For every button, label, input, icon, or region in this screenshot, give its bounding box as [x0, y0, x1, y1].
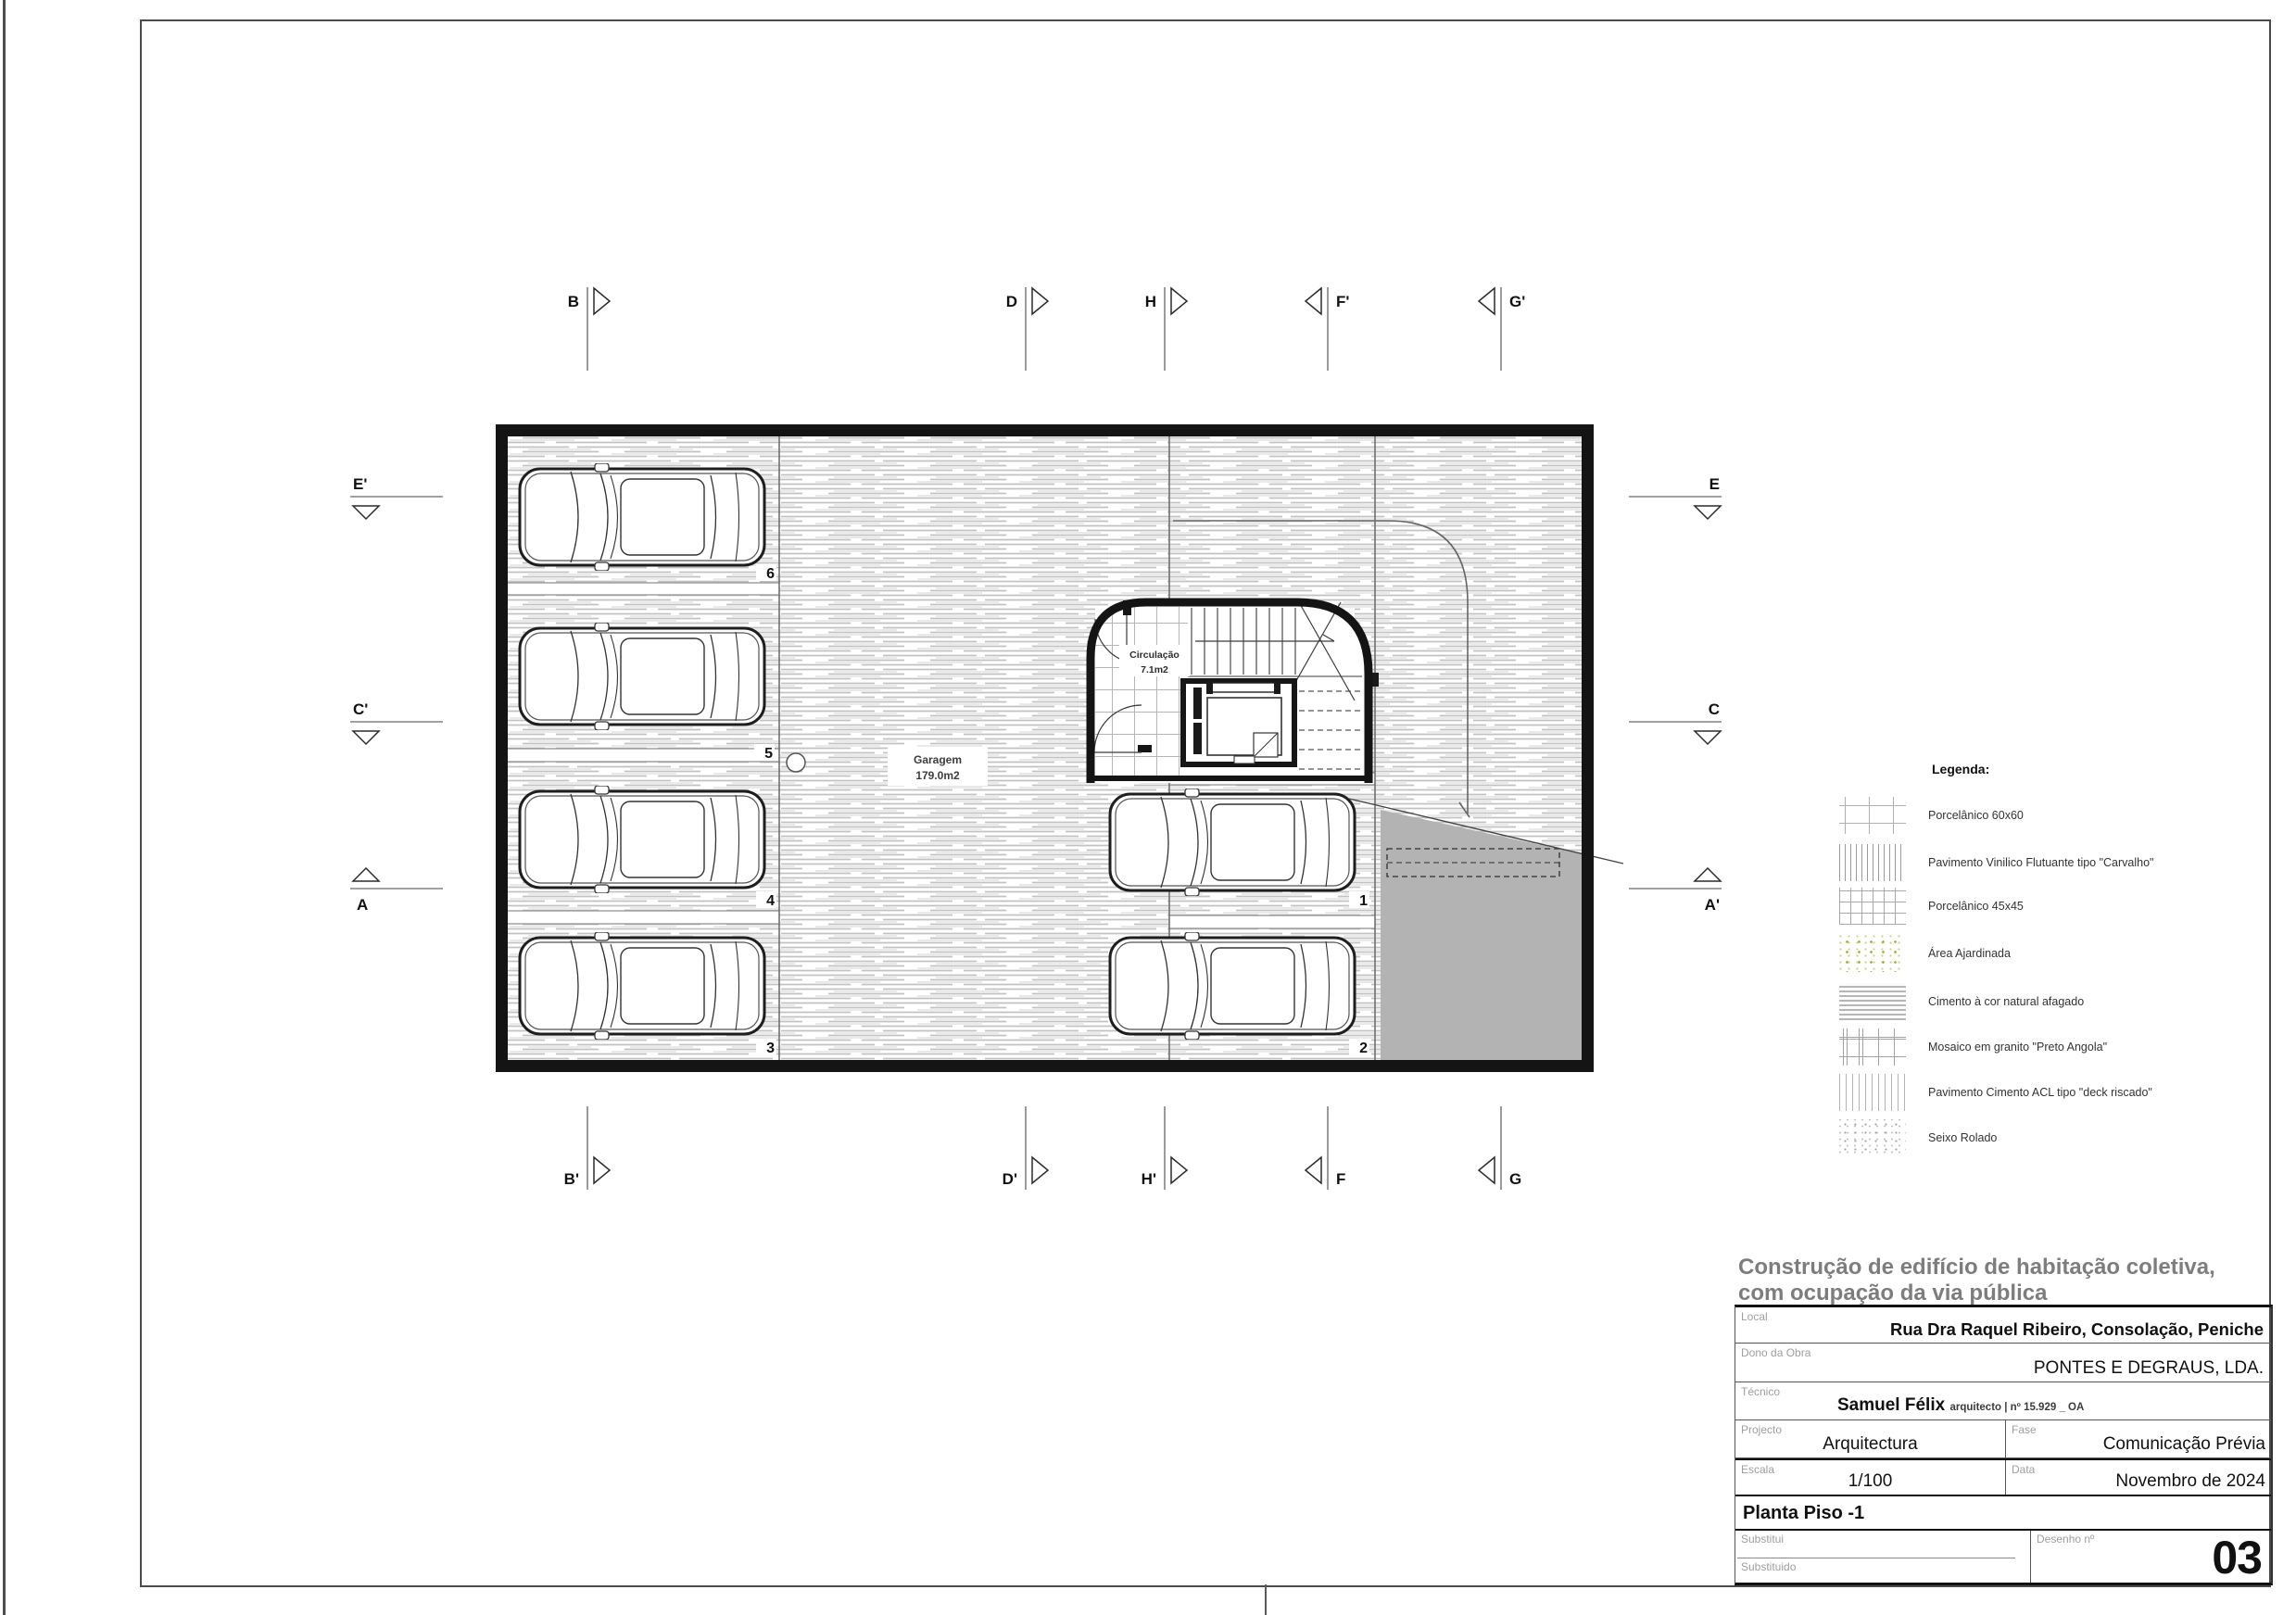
section-marker-D-prime: D' [1003, 1106, 1048, 1190]
section-arrow-icon [1479, 1157, 1495, 1183]
svg-text:B: B [568, 293, 579, 310]
garage-label: Garagem [914, 753, 962, 766]
svg-text:G': G' [1509, 293, 1525, 310]
tecnico-name: Samuel Félix [1837, 1395, 1945, 1415]
pattern-swatch-ajardinada-icon [1839, 935, 1906, 972]
fase-value: Comunicação Prévia [2103, 1434, 2265, 1455]
circulation-label: Circulação [1129, 650, 1180, 661]
car-stall-3 [520, 932, 764, 1040]
stall-number-2: 2 [1359, 1041, 1368, 1056]
stall-number-1: 1 [1359, 893, 1368, 909]
legend-item: Pavimento Cimento ACL tipo "deck riscado… [1839, 1074, 2152, 1111]
section-marker-G-prime: G' [1479, 287, 1525, 371]
garage-label-group: Garagem 179.0m2 [888, 747, 988, 786]
legend-heading: Legenda: [1932, 762, 1989, 776]
pattern-swatch-vinilico-icon [1839, 844, 1906, 881]
local-value: Rua Dra Raquel Ribeiro, Consolação, Peni… [1890, 1319, 2264, 1340]
svg-text:F': F' [1336, 293, 1349, 310]
stall-number-3: 3 [766, 1041, 775, 1056]
section-marker-F: F [1306, 1106, 1345, 1190]
section-arrow-icon [594, 288, 610, 314]
car-stall-6 [520, 463, 764, 571]
data-value: Novembro de 2024 [2115, 1471, 2265, 1492]
car-stall-1 [1110, 789, 1355, 896]
title-block-row-drawing-name: Planta Piso -1 [1735, 1496, 2271, 1531]
section-marker-A-prime: A' [1629, 868, 1722, 914]
section-arrow-icon [353, 506, 379, 519]
title-block-row-substitui-desenho: Substitui Substituido Desenho nº 03 [1735, 1531, 2271, 1583]
section-marker-A: A [350, 868, 443, 914]
drawing-name: Planta Piso -1 [1743, 1503, 1864, 1524]
legend-item: Seixo Rolado [1839, 1119, 1997, 1156]
svg-text:A: A [357, 896, 368, 914]
section-arrow-icon [353, 731, 379, 744]
garage-area: 179.0m2 [915, 769, 960, 782]
section-arrow-icon [1306, 1157, 1321, 1183]
svg-text:E: E [1709, 475, 1720, 493]
section-marker-E-prime: E' [350, 475, 443, 519]
legend-item: Cimento à cor natural afagado [1839, 983, 2084, 1020]
car-stall-4 [520, 786, 764, 893]
pattern-swatch-cimento-icon [1839, 983, 1906, 1020]
drawing-number: 03 [2212, 1531, 2262, 1584]
svg-text:A': A' [1705, 896, 1720, 914]
svg-text:E': E' [353, 475, 367, 493]
legend-item: Pavimento Vinilico Flutuante tipo "Carva… [1839, 844, 2154, 881]
legend-item: Porcelânico 60x60 [1839, 797, 2024, 834]
escala-value: 1/100 [1735, 1471, 2005, 1492]
pattern-swatch-mosaico-icon [1839, 1028, 1906, 1066]
section-marker-E: E [1629, 475, 1722, 519]
section-arrow-icon [1171, 288, 1187, 314]
section-arrow-icon [594, 1157, 610, 1183]
column-circle [787, 753, 805, 772]
section-marker-H: H [1145, 287, 1187, 371]
stall-number-6: 6 [766, 566, 775, 582]
circulation-area: 7.1m2 [1141, 664, 1168, 675]
section-arrow-icon [353, 868, 379, 881]
svg-text:C: C [1709, 700, 1720, 718]
svg-text:C': C' [353, 700, 368, 718]
section-arrow-icon [1479, 288, 1495, 314]
title-block: Construção de edifício de habitação cole… [1735, 1253, 2273, 1585]
section-arrow-icon [1171, 1157, 1187, 1183]
section-marker-H-prime: H' [1142, 1106, 1187, 1190]
section-arrow-icon [1032, 288, 1048, 314]
svg-text:H': H' [1142, 1170, 1156, 1188]
tecnico-credentials: arquitecto | nº 15.929 _ OA [1949, 1402, 2084, 1413]
section-arrow-icon [1695, 506, 1721, 519]
stall-number-5: 5 [764, 746, 773, 762]
title-block-row-dono: Dono da Obra PONTES E DEGRAUS, LDA. [1735, 1344, 2271, 1382]
section-arrow-icon [1695, 731, 1721, 744]
section-marker-C-prime: C' [350, 700, 443, 744]
svg-text:B': B' [564, 1170, 579, 1188]
section-arrow-icon [1032, 1157, 1048, 1183]
section-marker-B: B [568, 287, 610, 371]
svg-text:F: F [1336, 1170, 1345, 1188]
section-arrow-icon [1306, 288, 1321, 314]
architectural-drawing-sheet: { "plan": { "garage": {"label": "Garagem… [0, 0, 2296, 1615]
title-block-row-escala-data: Escala 1/100 Data Novembro de 2024 [1735, 1458, 2271, 1496]
section-marker-B-prime: B' [564, 1106, 610, 1190]
title-block-row-projecto-fase: Projecto Arquitectura Fase Comunicação P… [1735, 1420, 2271, 1458]
section-marker-D: D [1006, 287, 1048, 371]
title-block-row-local: Local Rua Dra Raquel Ribeiro, Consolação… [1735, 1307, 2271, 1344]
projecto-value: Arquitectura [1735, 1434, 2005, 1455]
project-title: Construção de edifício de habitação cole… [1735, 1253, 2273, 1305]
elevator [1183, 681, 1294, 764]
title-block-row-tecnico: Técnico Samuel Félix arquitecto | nº 15.… [1735, 1382, 2271, 1420]
legend-item: Porcelânico 45x45 [1839, 888, 2024, 925]
substitui-line [1737, 1558, 2015, 1558]
svg-text:G: G [1509, 1170, 1521, 1188]
section-marker-F-prime: F' [1306, 287, 1349, 371]
pattern-swatch-seixo-icon [1839, 1119, 1906, 1156]
stair-core: Circulação 7.1m2 [1091, 600, 1369, 783]
car-stall-5 [520, 623, 764, 730]
stall-number-4: 4 [766, 893, 775, 909]
pattern-swatch-porcelanico-45x45-icon [1839, 888, 1906, 925]
car-stall-2 [1110, 932, 1355, 1040]
svg-text:D: D [1006, 293, 1017, 310]
section-marker-G: G [1479, 1106, 1521, 1190]
svg-text:H: H [1145, 293, 1156, 310]
legend-item: Área Ajardinada [1839, 935, 2011, 972]
legend-item: Mosaico em granito "Preto Angola" [1839, 1028, 2107, 1066]
svg-text:D': D' [1003, 1170, 1017, 1188]
dono-value: PONTES E DEGRAUS, LDA. [2034, 1358, 2264, 1379]
section-arrow-icon [1695, 868, 1721, 881]
pattern-swatch-deck-icon [1839, 1074, 1906, 1111]
section-marker-C: C [1629, 700, 1722, 744]
pattern-swatch-porcelanico-60x60-icon [1839, 797, 1906, 834]
